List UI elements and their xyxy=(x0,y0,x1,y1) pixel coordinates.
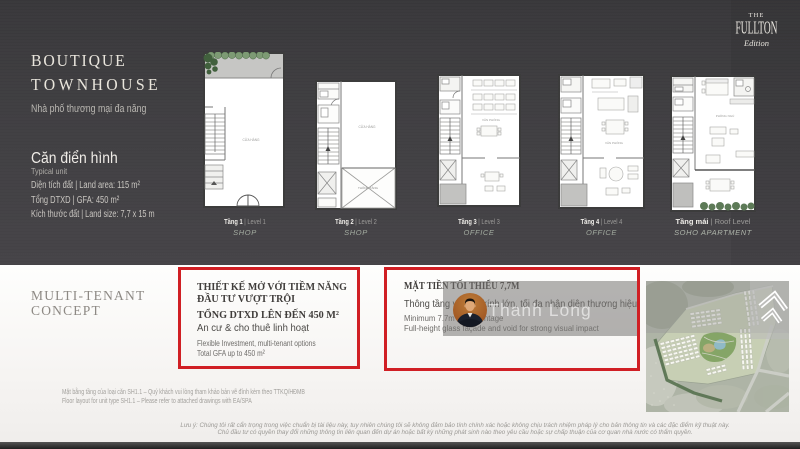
svg-text:CỬA HÀNG: CỬA HÀNG xyxy=(358,124,376,129)
svg-text:PHÒNG NGỦ: PHÒNG NGỦ xyxy=(716,113,735,118)
svg-text:CỬA HÀNG: CỬA HÀNG xyxy=(242,137,260,142)
svg-text:VĂN PHÒNG: VĂN PHÒNG xyxy=(605,140,624,145)
svg-text:VĂN PHÒNG: VĂN PHÒNG xyxy=(482,117,501,122)
svg-text:THÔNG TẦNG: THÔNG TẦNG xyxy=(358,185,379,190)
